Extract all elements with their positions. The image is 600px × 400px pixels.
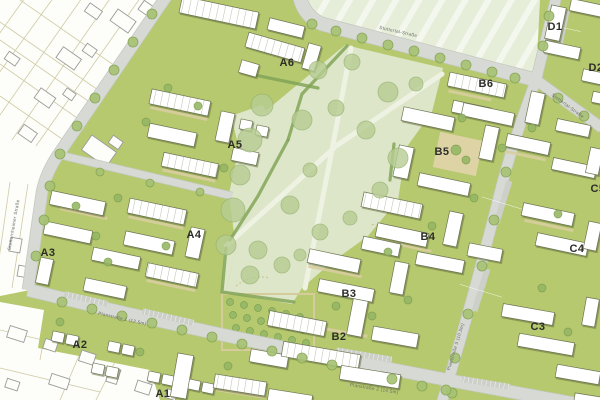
block-label-a2: A2: [72, 339, 87, 351]
block-label-a4: A4: [186, 229, 201, 241]
block-label-c3: C3: [530, 321, 545, 333]
block-label-c4: C4: [569, 243, 584, 255]
block-label-b6: B6: [478, 78, 493, 90]
block-label-b2: B2: [331, 331, 346, 343]
map-canvas: Stottertal-Straße Stottertal-Straße Stot…: [0, 0, 600, 400]
block-label-d2: D2: [588, 62, 600, 74]
block-label-b5: B5: [434, 146, 449, 158]
block-label-a6: A6: [279, 57, 294, 69]
block-label-d1: D1: [547, 21, 562, 33]
block-label-a1: A1: [155, 388, 170, 400]
block-label-a3: A3: [40, 247, 55, 259]
block-label-b4: B4: [420, 231, 435, 243]
block-label-a5: A5: [227, 139, 242, 151]
masterplan-map: Stottertal-Straße Stottertal-Straße Stot…: [0, 0, 600, 400]
block-label-b3: B3: [341, 288, 356, 300]
block-label-c5: C5: [590, 183, 600, 195]
